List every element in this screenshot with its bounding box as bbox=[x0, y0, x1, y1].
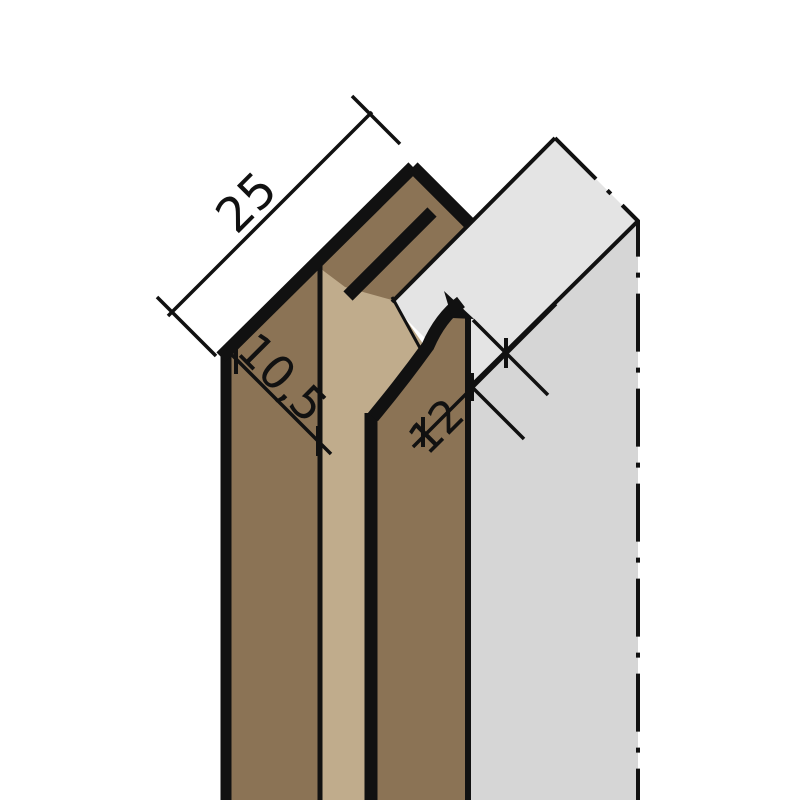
dimension-25-label: 25 bbox=[205, 161, 288, 244]
profile-cross-section-drawing: 25 10,5 12 bbox=[0, 0, 800, 800]
dimension-25-extension-upper bbox=[352, 96, 400, 144]
technical-drawing-page: 25 10,5 12 bbox=[0, 0, 800, 800]
dimension-25-extension-lower bbox=[157, 297, 216, 356]
